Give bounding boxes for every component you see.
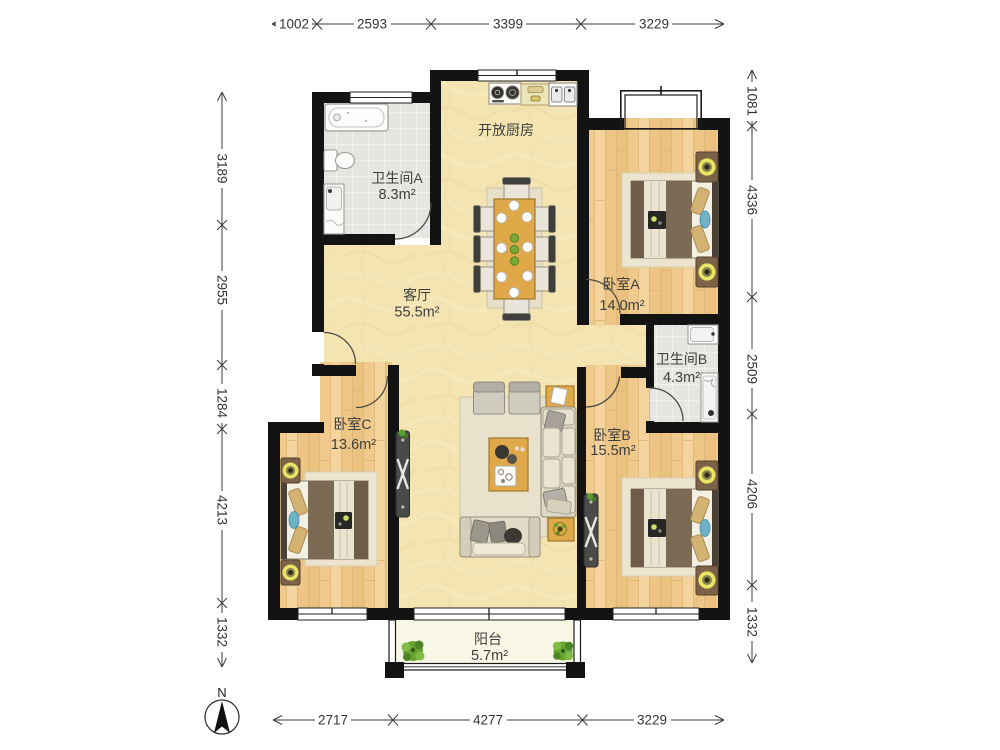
svg-text:1002: 1002 <box>279 17 309 32</box>
svg-text:卧室B: 卧室B <box>593 427 630 443</box>
svg-text:5.7m²: 5.7m² <box>471 648 508 664</box>
svg-text:阳台: 阳台 <box>474 631 502 647</box>
svg-text:3229: 3229 <box>637 713 667 728</box>
svg-text:1081: 1081 <box>745 86 760 116</box>
svg-text:2593: 2593 <box>357 17 387 32</box>
svg-text:客厅: 客厅 <box>403 287 431 303</box>
svg-text:4213: 4213 <box>215 495 230 525</box>
svg-text:卧室C: 卧室C <box>333 416 371 432</box>
svg-text:1332: 1332 <box>215 617 230 647</box>
svg-text:3229: 3229 <box>639 17 669 32</box>
svg-text:3399: 3399 <box>493 17 523 32</box>
svg-text:1332: 1332 <box>745 607 760 637</box>
svg-text:4336: 4336 <box>745 185 760 215</box>
svg-text:4277: 4277 <box>473 713 503 728</box>
svg-text:1284: 1284 <box>215 388 230 419</box>
svg-text:3189: 3189 <box>215 153 230 183</box>
svg-text:2717: 2717 <box>318 713 348 728</box>
svg-text:15.5m²: 15.5m² <box>590 443 635 459</box>
svg-text:4.3m²: 4.3m² <box>663 370 700 386</box>
svg-text:N: N <box>217 685 226 700</box>
svg-text:卫生间B: 卫生间B <box>656 351 707 367</box>
svg-text:2955: 2955 <box>215 275 230 305</box>
svg-text:55.5m²: 55.5m² <box>394 305 439 321</box>
svg-text:14.0m²: 14.0m² <box>599 298 644 314</box>
svg-text:8.3m²: 8.3m² <box>378 187 415 203</box>
svg-text:2509: 2509 <box>745 354 760 384</box>
svg-text:开放厨房: 开放厨房 <box>478 122 534 138</box>
svg-text:卧室A: 卧室A <box>602 276 640 292</box>
svg-text:13.6m²: 13.6m² <box>331 437 376 453</box>
svg-text:卫生间A: 卫生间A <box>371 170 423 186</box>
svg-text:4206: 4206 <box>745 479 760 509</box>
